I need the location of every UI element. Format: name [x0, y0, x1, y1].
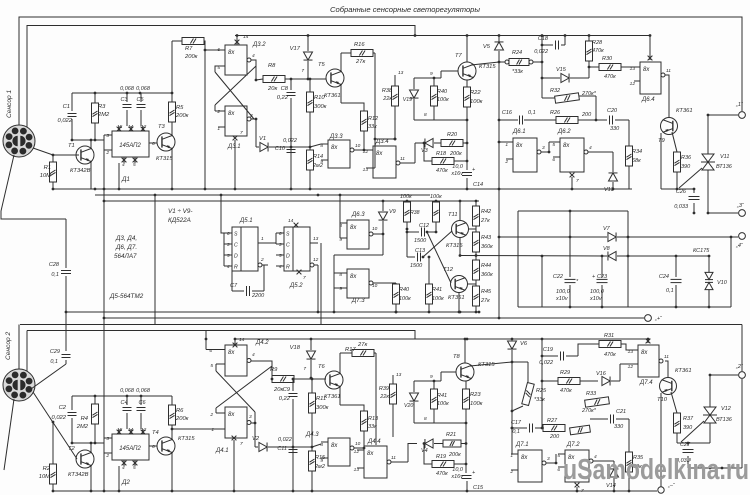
svg-text:Т10: Т10 [657, 397, 668, 403]
svg-text:R28: R28 [592, 40, 603, 46]
svg-text:R31: R31 [604, 333, 614, 339]
svg-text:С14: С14 [473, 182, 483, 188]
svg-text:КТ361: КТ361 [676, 108, 693, 114]
svg-text:R40: R40 [437, 89, 448, 95]
svg-text:R9: R9 [270, 367, 278, 373]
svg-text:3: 3 [542, 145, 545, 151]
svg-text:R24: R24 [512, 50, 522, 56]
svg-text:С10: С10 [275, 146, 286, 152]
svg-text:27к: 27к [480, 218, 490, 224]
svg-text:0,022: 0,022 [51, 415, 66, 421]
svg-text:22к: 22к [379, 394, 389, 400]
svg-text:Т8: Т8 [453, 354, 461, 360]
svg-text:х10v: х10v [589, 296, 603, 302]
svg-text:C: C [234, 243, 238, 249]
svg-text:8х: 8х [641, 350, 648, 356]
svg-text:R38: R38 [410, 210, 420, 216]
svg-text:12: 12 [141, 427, 147, 433]
svg-text:9: 9 [339, 286, 342, 292]
svg-text:6: 6 [227, 231, 230, 237]
svg-text:R5: R5 [176, 105, 184, 111]
svg-text:R11: R11 [316, 396, 326, 402]
svg-text:*33к: *33к [512, 69, 523, 75]
svg-text:8х: 8х [516, 143, 523, 149]
svg-text:100к: 100к [432, 296, 444, 302]
svg-text:С11: С11 [277, 446, 287, 452]
svg-text:С17: С17 [511, 420, 522, 426]
svg-text:С15: С15 [473, 485, 484, 491]
svg-text:470к: 470к [604, 74, 616, 80]
svg-text:R25: R25 [536, 388, 547, 394]
svg-text:С19: С19 [543, 347, 553, 353]
svg-text:0,1: 0,1 [666, 288, 674, 294]
svg-text:0,068: 0,068 [120, 86, 135, 92]
svg-text:Т4: Т4 [152, 430, 159, 436]
svg-text:200к: 200к [449, 151, 462, 157]
svg-text:1500: 1500 [410, 263, 423, 269]
svg-text:68к: 68к [632, 158, 641, 164]
svg-text:Д7.2: Д7.2 [566, 442, 580, 448]
svg-text:R33: R33 [586, 391, 597, 397]
svg-text:0,1: 0,1 [528, 110, 536, 116]
svg-text:R36: R36 [681, 155, 692, 161]
svg-text:С22: С22 [553, 274, 563, 280]
svg-text:300к: 300к [316, 405, 329, 411]
svg-text:200: 200 [581, 112, 592, 118]
svg-text:Сенсор 1: Сенсор 1 [6, 89, 13, 118]
svg-text:12: 12 [141, 124, 147, 130]
svg-text:8: 8 [424, 112, 427, 118]
svg-text:9: 9 [430, 71, 433, 77]
svg-text:7: 7 [576, 178, 579, 184]
svg-text:КС175: КС175 [693, 248, 710, 254]
svg-text:С29: С29 [50, 349, 60, 355]
svg-text:4: 4 [227, 264, 230, 270]
svg-text:470к: 470к [436, 168, 448, 174]
svg-text:330: 330 [614, 424, 624, 430]
svg-text:8х: 8х [228, 412, 235, 418]
svg-text:4: 4 [589, 145, 592, 151]
svg-text:R21: R21 [446, 432, 456, 438]
svg-text:Д7.3: Д7.3 [351, 298, 365, 304]
svg-text:Д7.4: Д7.4 [639, 380, 653, 386]
svg-text:4: 4 [279, 264, 282, 270]
svg-text:С8: С8 [281, 86, 289, 92]
svg-text:Д6.2: Д6.2 [557, 129, 571, 135]
svg-text:7: 7 [240, 130, 243, 136]
svg-text:5: 5 [279, 253, 282, 259]
svg-text:R13: R13 [368, 416, 379, 422]
svg-text:R3: R3 [98, 104, 106, 110]
svg-text:Д6.3: Д6.3 [351, 212, 365, 218]
svg-text:8х: 8х [350, 274, 357, 280]
svg-text:С23: С23 [597, 274, 608, 280]
svg-text:С24: С24 [659, 274, 669, 280]
svg-text:С20: С20 [607, 108, 618, 114]
svg-text:10: 10 [372, 226, 378, 232]
svg-text:R14: R14 [313, 154, 323, 160]
svg-text:8х: 8х [331, 145, 338, 151]
svg-text:200к: 200к [175, 113, 189, 119]
svg-text:С16: С16 [502, 110, 513, 116]
svg-text:2м2: 2м2 [312, 163, 323, 169]
svg-text:R41: R41 [437, 393, 447, 399]
svg-text:20к: 20к [267, 86, 277, 92]
svg-text:1500: 1500 [414, 238, 427, 244]
svg-text:10: 10 [355, 441, 361, 447]
svg-text:6: 6 [279, 231, 282, 237]
svg-text:Д4.4: Д4.4 [367, 439, 381, 445]
svg-text:8х: 8х [228, 50, 235, 56]
svg-text:С18: С18 [538, 36, 549, 42]
svg-text:15: 15 [117, 427, 123, 433]
svg-text:12: 12 [363, 149, 369, 155]
svg-text:8х: 8х [563, 143, 570, 149]
svg-text:х10v: х10v [555, 296, 569, 302]
svg-text:470к: 470к [604, 352, 616, 358]
svg-text:0,1: 0,1 [512, 429, 520, 435]
svg-text:С9: С9 [283, 387, 291, 393]
svg-text:6: 6 [152, 141, 155, 147]
svg-text:Т5: Т5 [318, 62, 326, 68]
svg-text:27к: 27к [480, 298, 490, 304]
svg-text:V7: V7 [603, 226, 611, 232]
svg-text:R38: R38 [382, 88, 393, 94]
svg-text:2: 2 [105, 150, 109, 156]
svg-text:V3: V3 [421, 148, 429, 154]
svg-text:„2“: „2“ [735, 364, 744, 370]
svg-text:х16v: х16v [450, 474, 464, 480]
svg-text:R: R [234, 265, 238, 271]
svg-text:КТ315: КТ315 [178, 436, 195, 442]
svg-text:0,1: 0,1 [50, 359, 58, 365]
svg-text:13: 13 [313, 236, 319, 242]
svg-text:0,022: 0,022 [283, 138, 297, 144]
svg-text:„1“: „1“ [735, 102, 744, 108]
svg-text:12: 12 [630, 81, 636, 87]
svg-text:S: S [286, 232, 290, 238]
svg-text:2: 2 [260, 257, 264, 263]
svg-text:R20: R20 [447, 132, 458, 138]
svg-text:R41: R41 [432, 287, 442, 293]
svg-text:V6: V6 [520, 341, 528, 347]
svg-text:145АП2: 145АП2 [119, 143, 141, 149]
svg-text:С2: С2 [59, 405, 67, 411]
svg-text:Д3.2: Д3.2 [252, 42, 266, 48]
svg-text:8х: 8х [228, 111, 235, 117]
svg-text:R45: R45 [481, 289, 492, 295]
svg-text:2м2: 2м2 [314, 464, 325, 470]
svg-text:Д5.2: Д5.2 [289, 283, 303, 289]
svg-text:3: 3 [227, 242, 230, 248]
svg-text:R27: R27 [547, 418, 558, 424]
svg-text:0,068: 0,068 [120, 388, 135, 394]
svg-text:Д7.1: Д7.1 [515, 442, 529, 448]
svg-text:„+“: „+“ [654, 316, 663, 322]
svg-text:0,033: 0,033 [674, 204, 689, 210]
svg-text:300к: 300к [314, 104, 327, 110]
svg-text:0,22: 0,22 [277, 95, 289, 101]
svg-text:uSamodelkina.ru: uSamodelkina.ru [563, 454, 749, 486]
svg-text:R12: R12 [368, 116, 378, 122]
svg-text:100к: 100к [399, 296, 411, 302]
svg-text:8х: 8х [331, 443, 338, 449]
svg-text:Д3, Д4,: Д3, Д4, [115, 235, 137, 242]
svg-text:0,1: 0,1 [51, 272, 59, 278]
svg-text:564ЛА7: 564ЛА7 [114, 253, 137, 260]
svg-text:R23: R23 [470, 392, 481, 398]
svg-text:3: 3 [106, 133, 109, 139]
svg-text:2М2: 2М2 [76, 424, 89, 430]
svg-text:V15: V15 [556, 67, 567, 73]
svg-text:10М: 10М [39, 474, 50, 480]
svg-text:х16v: х16v [450, 171, 464, 177]
svg-text:R4: R4 [81, 416, 88, 422]
svg-text:470к: 470к [592, 48, 604, 54]
svg-text:С5: С5 [136, 97, 144, 103]
svg-text:R22: R22 [470, 90, 481, 96]
svg-text:8: 8 [320, 442, 323, 448]
svg-text:Т7: Т7 [455, 53, 463, 59]
svg-text:100к: 100к [470, 99, 483, 105]
svg-text:0,022: 0,022 [278, 437, 292, 443]
svg-text:10: 10 [372, 283, 378, 289]
svg-text:7: 7 [240, 441, 243, 447]
svg-text:„4“: „4“ [735, 243, 744, 249]
svg-text:3: 3 [249, 414, 252, 420]
svg-text:КТ315: КТ315 [446, 243, 463, 249]
svg-text:14: 14 [243, 34, 249, 40]
svg-text:Д5-564ТМ2: Д5-564ТМ2 [109, 293, 144, 300]
svg-text:Д4.1: Д4.1 [215, 448, 229, 454]
svg-text:R37: R37 [683, 416, 694, 422]
svg-text:Д6.4: Д6.4 [641, 97, 655, 103]
svg-text:4: 4 [252, 53, 255, 59]
svg-text:200к: 200к [184, 54, 198, 60]
svg-text:R32: R32 [550, 88, 560, 94]
svg-text:+: + [472, 470, 476, 476]
svg-text:„3“: „3“ [736, 203, 745, 209]
svg-text:6: 6 [557, 467, 560, 473]
svg-text:V9: V9 [389, 209, 396, 215]
svg-text:12: 12 [313, 257, 319, 263]
svg-text:*: * [576, 279, 579, 285]
svg-text:200: 200 [549, 434, 560, 440]
svg-text:Д2: Д2 [121, 479, 130, 486]
svg-text:0,068: 0,068 [136, 86, 151, 92]
svg-text:100,0: 100,0 [556, 289, 571, 295]
svg-text:R15: R15 [315, 455, 326, 461]
svg-text:R16: R16 [354, 42, 365, 48]
svg-text:КТ342В: КТ342В [68, 472, 89, 478]
svg-text:200к: 200к [448, 452, 461, 458]
svg-text:1: 1 [505, 142, 508, 148]
svg-text:V18: V18 [290, 345, 301, 351]
svg-text:Д4.2: Д4.2 [255, 340, 269, 346]
svg-text:0,022: 0,022 [539, 360, 553, 366]
svg-text:V20: V20 [404, 403, 413, 409]
svg-text:V17: V17 [290, 46, 301, 52]
svg-text:13: 13 [398, 70, 404, 76]
svg-text:R17: R17 [345, 347, 356, 353]
svg-text:8х: 8х [376, 151, 383, 157]
svg-text:Сенсор 2: Сенсор 2 [5, 331, 12, 360]
svg-text:100к: 100к [400, 194, 412, 200]
svg-text:R42: R42 [481, 209, 491, 215]
svg-text:V10: V10 [717, 280, 728, 286]
svg-text:КТ361: КТ361 [324, 394, 341, 400]
svg-text:8х: 8х [643, 67, 650, 73]
svg-text:13: 13 [396, 372, 402, 378]
svg-text:0,022: 0,022 [534, 49, 548, 55]
svg-text:7: 7 [581, 488, 584, 494]
svg-text:V11: V11 [720, 154, 729, 160]
svg-text:R43: R43 [481, 235, 492, 241]
svg-text:8х: 8х [350, 225, 357, 231]
svg-text:Т9: Т9 [658, 138, 666, 144]
svg-text:Д4.3: Д4.3 [305, 432, 319, 438]
svg-text:2200: 2200 [251, 293, 265, 299]
svg-text:Д3.3: Д3.3 [329, 134, 343, 140]
svg-text:14: 14 [288, 218, 294, 224]
svg-text:КТ361: КТ361 [324, 93, 341, 99]
svg-text:33к: 33к [368, 124, 377, 130]
svg-text:Д3.1: Д3.1 [227, 144, 241, 150]
svg-text:10: 10 [355, 143, 361, 149]
svg-text:7: 7 [303, 275, 306, 281]
svg-text:11: 11 [664, 354, 669, 360]
svg-text:8х: 8х [228, 350, 235, 356]
svg-text:Д6, Д7.: Д6, Д7. [115, 244, 137, 251]
svg-text:Т6: Т6 [318, 364, 326, 370]
svg-text:КТ342В: КТ342В [70, 168, 91, 174]
svg-text:С28: С28 [49, 262, 60, 268]
svg-text:C: C [286, 243, 290, 249]
svg-text:15: 15 [117, 124, 123, 130]
svg-text:22к: 22к [382, 96, 392, 102]
svg-text:R: R [286, 265, 290, 271]
svg-text:6: 6 [209, 348, 212, 354]
svg-text:R29: R29 [560, 370, 570, 376]
svg-text:V19: V19 [403, 97, 412, 103]
svg-text:R2: R2 [43, 466, 51, 472]
svg-text:R7: R7 [185, 46, 193, 52]
svg-text:360к: 360к [481, 244, 493, 250]
svg-text:R44: R44 [481, 263, 491, 269]
svg-text:5: 5 [210, 363, 213, 369]
svg-text:КТ361: КТ361 [675, 368, 692, 374]
svg-text:7: 7 [301, 68, 304, 74]
svg-text:200к: 200к [175, 416, 189, 422]
svg-text:D: D [286, 254, 290, 260]
svg-text:360к: 360к [481, 272, 493, 278]
svg-text:R30: R30 [602, 56, 613, 62]
svg-text:V16: V16 [596, 371, 607, 377]
svg-text:3: 3 [279, 242, 282, 248]
svg-text:10М: 10М [40, 173, 51, 179]
svg-text:4: 4 [252, 352, 255, 358]
svg-text:Т3: Т3 [158, 124, 166, 130]
svg-text:100к: 100к [437, 401, 449, 407]
svg-text:С13: С13 [415, 248, 426, 254]
svg-text:+: + [472, 167, 476, 173]
svg-text:330: 330 [610, 126, 620, 132]
svg-text:КТ361: КТ361 [448, 295, 465, 301]
svg-text:Д1: Д1 [121, 176, 130, 183]
svg-text:V12: V12 [721, 406, 731, 412]
svg-text:Собранные сенсорные светорегул: Собранные сенсорные светорегуляторы [330, 5, 480, 14]
svg-text:27к: 27к [355, 59, 365, 65]
svg-text:КД522А: КД522А [168, 217, 191, 224]
svg-text:11: 11 [391, 455, 396, 461]
svg-text:R8: R8 [268, 63, 276, 69]
svg-text:270к*: 270к* [581, 408, 597, 414]
svg-text:10,0: 10,0 [452, 467, 464, 473]
svg-text:2: 2 [216, 109, 220, 115]
svg-text:R26: R26 [550, 110, 561, 116]
svg-text:0,068: 0,068 [136, 388, 151, 394]
svg-text:V5: V5 [483, 44, 491, 50]
svg-text:390: 390 [683, 425, 693, 431]
svg-text:ВТ136: ВТ136 [716, 417, 733, 423]
svg-text:V8: V8 [603, 246, 611, 252]
svg-text:1: 1 [211, 427, 214, 433]
svg-text:33к: 33к [368, 424, 377, 430]
svg-text:10,0: 10,0 [452, 164, 464, 170]
svg-text:R1: R1 [44, 165, 51, 171]
svg-text:2М2: 2М2 [97, 112, 110, 118]
svg-text:100к: 100к [470, 401, 483, 407]
svg-text:9: 9 [430, 374, 433, 380]
svg-text:R6: R6 [176, 408, 184, 414]
svg-text:Д5.1: Д5.1 [239, 218, 253, 224]
svg-text:Д6.1: Д6.1 [512, 129, 526, 135]
svg-text:С7: С7 [230, 283, 238, 289]
svg-text:6: 6 [152, 444, 155, 450]
svg-text:R39: R39 [379, 386, 389, 392]
svg-text:С1: С1 [63, 104, 70, 110]
svg-text:8х: 8х [367, 451, 374, 457]
svg-text:8х: 8х [521, 455, 528, 461]
svg-text:27к: 27к [357, 342, 367, 348]
svg-text:С4: С4 [120, 400, 127, 406]
svg-text:R18: R18 [436, 151, 447, 157]
svg-text:2: 2 [105, 453, 109, 459]
svg-text:С21: С21 [616, 409, 626, 415]
svg-text:0,022: 0,022 [57, 118, 72, 124]
svg-text:390: 390 [681, 164, 691, 170]
svg-text:0,22: 0,22 [279, 396, 291, 402]
svg-text:S: S [234, 232, 238, 238]
svg-text:Т11: Т11 [448, 212, 458, 218]
svg-text:470к: 470к [560, 388, 572, 394]
svg-text:R34: R34 [632, 149, 642, 155]
svg-text:11: 11 [666, 68, 671, 74]
svg-text:D: D [234, 254, 238, 260]
svg-text:С12: С12 [419, 223, 429, 229]
svg-text:Д3.4: Д3.4 [375, 139, 389, 145]
svg-text:100к: 100к [437, 97, 449, 103]
svg-text:6: 6 [552, 157, 555, 163]
svg-text:12: 12 [628, 364, 634, 370]
svg-text:КТ315: КТ315 [479, 64, 496, 70]
svg-text:11: 11 [400, 156, 405, 162]
svg-text:470к: 470к [436, 471, 448, 477]
svg-text:С6: С6 [138, 400, 146, 406]
svg-text:R19: R19 [436, 454, 446, 460]
svg-text:С26: С26 [676, 189, 687, 195]
svg-text:2: 2 [504, 159, 508, 165]
